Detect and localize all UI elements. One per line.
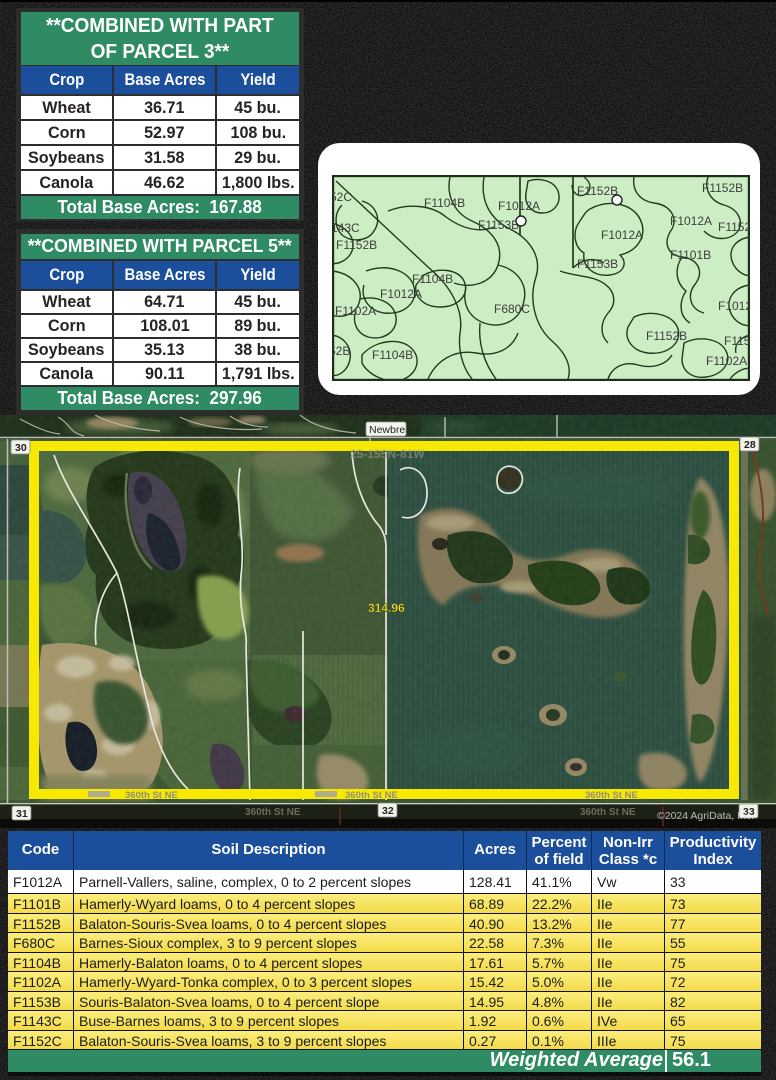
svg-text:F1153B: F1153B xyxy=(478,218,519,232)
svg-text:F1102A: F1102A xyxy=(335,304,376,318)
svg-text:360th St NE: 360th St NE xyxy=(580,807,636,818)
svg-text:F1152B: F1152B xyxy=(577,184,618,198)
svg-text:F1012A: F1012A xyxy=(601,228,643,242)
svg-text:28: 28 xyxy=(744,439,756,451)
svg-text:©2024 AgriData, Inc.: ©2024 AgriData, Inc. xyxy=(657,810,754,822)
svg-text:F1152: F1152 xyxy=(718,220,750,234)
svg-text:30: 30 xyxy=(15,442,27,454)
svg-text:25-155N-81W: 25-155N-81W xyxy=(350,447,425,461)
svg-text:32: 32 xyxy=(382,805,394,817)
svg-text:F1012A: F1012A xyxy=(670,214,712,228)
svg-text:F1104B: F1104B xyxy=(424,196,465,210)
svg-text:F1101B: F1101B xyxy=(670,248,711,262)
svg-text:31: 31 xyxy=(16,808,28,820)
svg-text:143C: 143C xyxy=(332,221,360,235)
svg-text:360th St NE: 360th St NE xyxy=(345,790,398,801)
svg-text:F1012A: F1012A xyxy=(498,199,540,213)
svg-text:F115: F115 xyxy=(724,334,750,348)
svg-text:Newbre: Newbre xyxy=(369,424,405,436)
svg-text:F1153B: F1153B xyxy=(577,257,618,271)
svg-text:F1012: F1012 xyxy=(718,299,750,313)
svg-text:F1152B: F1152B xyxy=(336,238,377,252)
svg-text:360th St NE: 360th St NE xyxy=(245,807,301,818)
svg-text:F1104B: F1104B xyxy=(412,272,453,286)
svg-text:F1152B: F1152B xyxy=(702,181,743,195)
svg-text:52C: 52C xyxy=(332,190,352,204)
svg-text:314.96: 314.96 xyxy=(368,601,405,615)
svg-text:F1152B: F1152B xyxy=(646,329,687,343)
svg-text:360th St NE: 360th St NE xyxy=(585,790,638,801)
svg-text:F1012A: F1012A xyxy=(380,287,422,301)
svg-text:F680C: F680C xyxy=(494,302,530,316)
svg-text:52B: 52B xyxy=(332,344,350,358)
svg-text:F1104B: F1104B xyxy=(372,348,413,362)
svg-text:360th St NE: 360th St NE xyxy=(125,790,178,801)
svg-text:F1102A: F1102A xyxy=(706,354,747,368)
